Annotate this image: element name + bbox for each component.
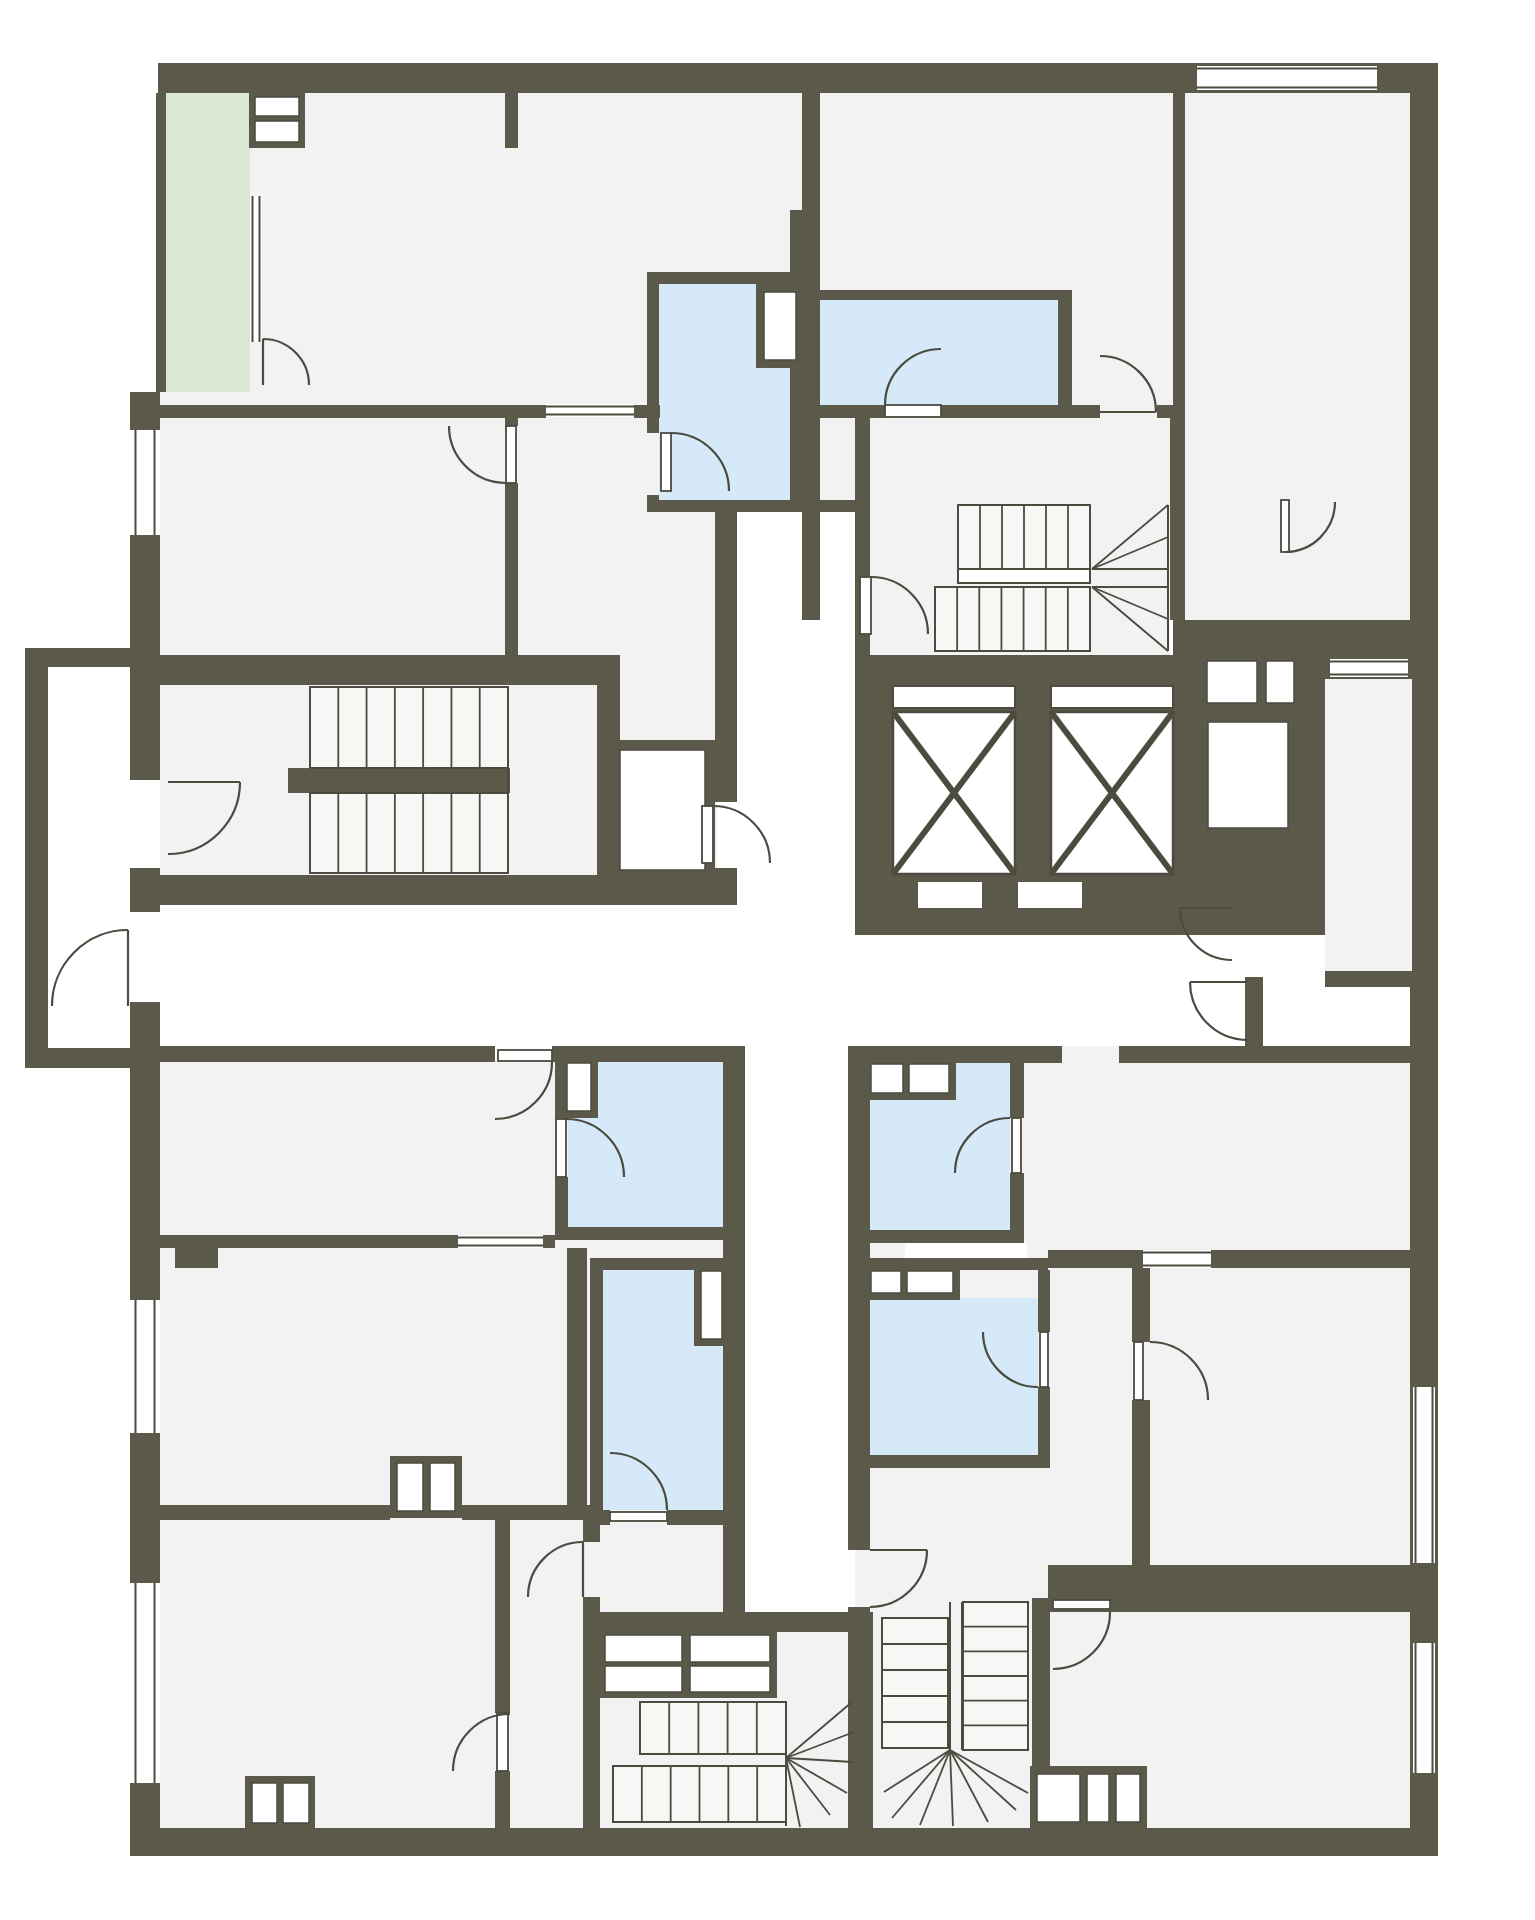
wall [1038,1387,1050,1460]
closet-cell [1208,722,1288,828]
wall [555,1177,568,1230]
wall [160,1046,495,1062]
wall [130,1002,160,1300]
closet-cell [1037,1774,1080,1822]
floor-plan-page [0,0,1535,1920]
wall [1038,1270,1050,1332]
closet-cell [1116,1774,1140,1822]
wall [1410,63,1438,1856]
wall [1048,1250,1143,1268]
elevator-door-slit [893,686,1015,708]
door-leaf [1281,500,1289,552]
wall [555,1227,745,1240]
closet-cell [701,1271,722,1339]
wall [941,405,1100,418]
door-leaf [1040,1332,1048,1387]
closet-cell [1266,661,1294,703]
wall [495,1520,510,1713]
stair-flight [310,687,508,768]
wall [1325,971,1412,987]
closet-cell [871,1271,901,1293]
wall [156,93,166,392]
closet-cell [255,97,299,116]
floor-plan [0,0,1535,1920]
wet-room [870,1298,1038,1457]
wall [25,648,48,1068]
door-leaf [506,426,516,483]
wall [130,535,160,780]
wet-room [820,300,1058,405]
stair-flight [935,587,1090,651]
balcony [166,93,250,392]
wall [160,405,546,418]
wall [567,1248,587,1520]
wall [160,655,605,685]
wall [130,1828,1438,1856]
closet-cell [907,1271,953,1293]
wall [647,500,870,512]
closet-cell [605,1635,682,1662]
closet-cell [620,750,705,870]
closet-cell [605,1666,682,1692]
door-leaf [610,1512,667,1521]
wall [1173,620,1410,655]
wall [505,93,518,148]
closet-cell [255,121,299,142]
corridor [48,667,130,1048]
door-leaf [497,1713,508,1771]
wall [647,284,659,433]
wall [1173,93,1185,418]
window [1197,66,1377,90]
wall [1010,1063,1024,1118]
closet-cell [909,1064,949,1093]
wall [583,1597,600,1612]
wall [715,512,737,802]
wall-niche [905,1243,1027,1258]
stair-flight [882,1618,948,1748]
wall [802,290,1070,300]
closet-cell [690,1635,770,1662]
closet-cell [871,1064,903,1093]
closet-cell [283,1783,309,1823]
closet-cell [430,1463,455,1511]
door-leaf [702,806,713,863]
wall [1170,418,1185,620]
closet-cell [1207,661,1257,703]
closet-cell [252,1783,277,1823]
window [133,1300,157,1433]
stair-rail [958,569,1090,583]
door-leaf [860,577,871,634]
corridor [745,1046,848,1620]
wall [25,1048,130,1068]
wall-niche [1018,882,1082,908]
wall [1211,1250,1410,1268]
wall [1245,977,1263,1048]
closet-cell [690,1666,770,1692]
door-leaf [661,433,671,491]
wall [288,768,510,793]
wall [802,93,820,620]
wall-niche [918,882,982,908]
room [1325,679,1412,973]
wall [848,1455,1050,1468]
closet-cell [764,292,796,360]
closet-cell [567,1063,591,1111]
wall [667,1510,745,1525]
wall [870,1230,1024,1243]
door-leaf [885,405,941,417]
wall [175,1248,218,1268]
wall [495,1771,510,1828]
window [133,1583,157,1783]
window [133,430,157,535]
stair-flight [640,1702,786,1754]
stair-flight [310,793,508,873]
wall [1119,1046,1410,1063]
room [1185,418,1410,655]
door-leaf [556,1119,566,1177]
wall [590,1258,603,1520]
door-leaf [1134,1342,1143,1400]
corridor [737,512,855,905]
wall [505,483,518,655]
wall [543,1235,555,1248]
wall [160,1235,458,1248]
wall [130,1433,160,1583]
door-leaf [1053,1600,1110,1609]
wall [160,1505,390,1520]
wall [505,414,518,426]
closet-cell [397,1463,423,1511]
wall [848,1620,873,1832]
elevator-door-slit [1051,686,1173,708]
door-leaf [498,1050,552,1061]
wall [1132,1400,1150,1565]
wall [583,1520,600,1542]
wall [647,272,790,284]
wall [715,868,737,905]
closet-cell [1087,1774,1109,1822]
wall [1058,290,1072,418]
wall [462,1505,590,1520]
wall [130,392,160,430]
door-leaf [1012,1118,1021,1173]
